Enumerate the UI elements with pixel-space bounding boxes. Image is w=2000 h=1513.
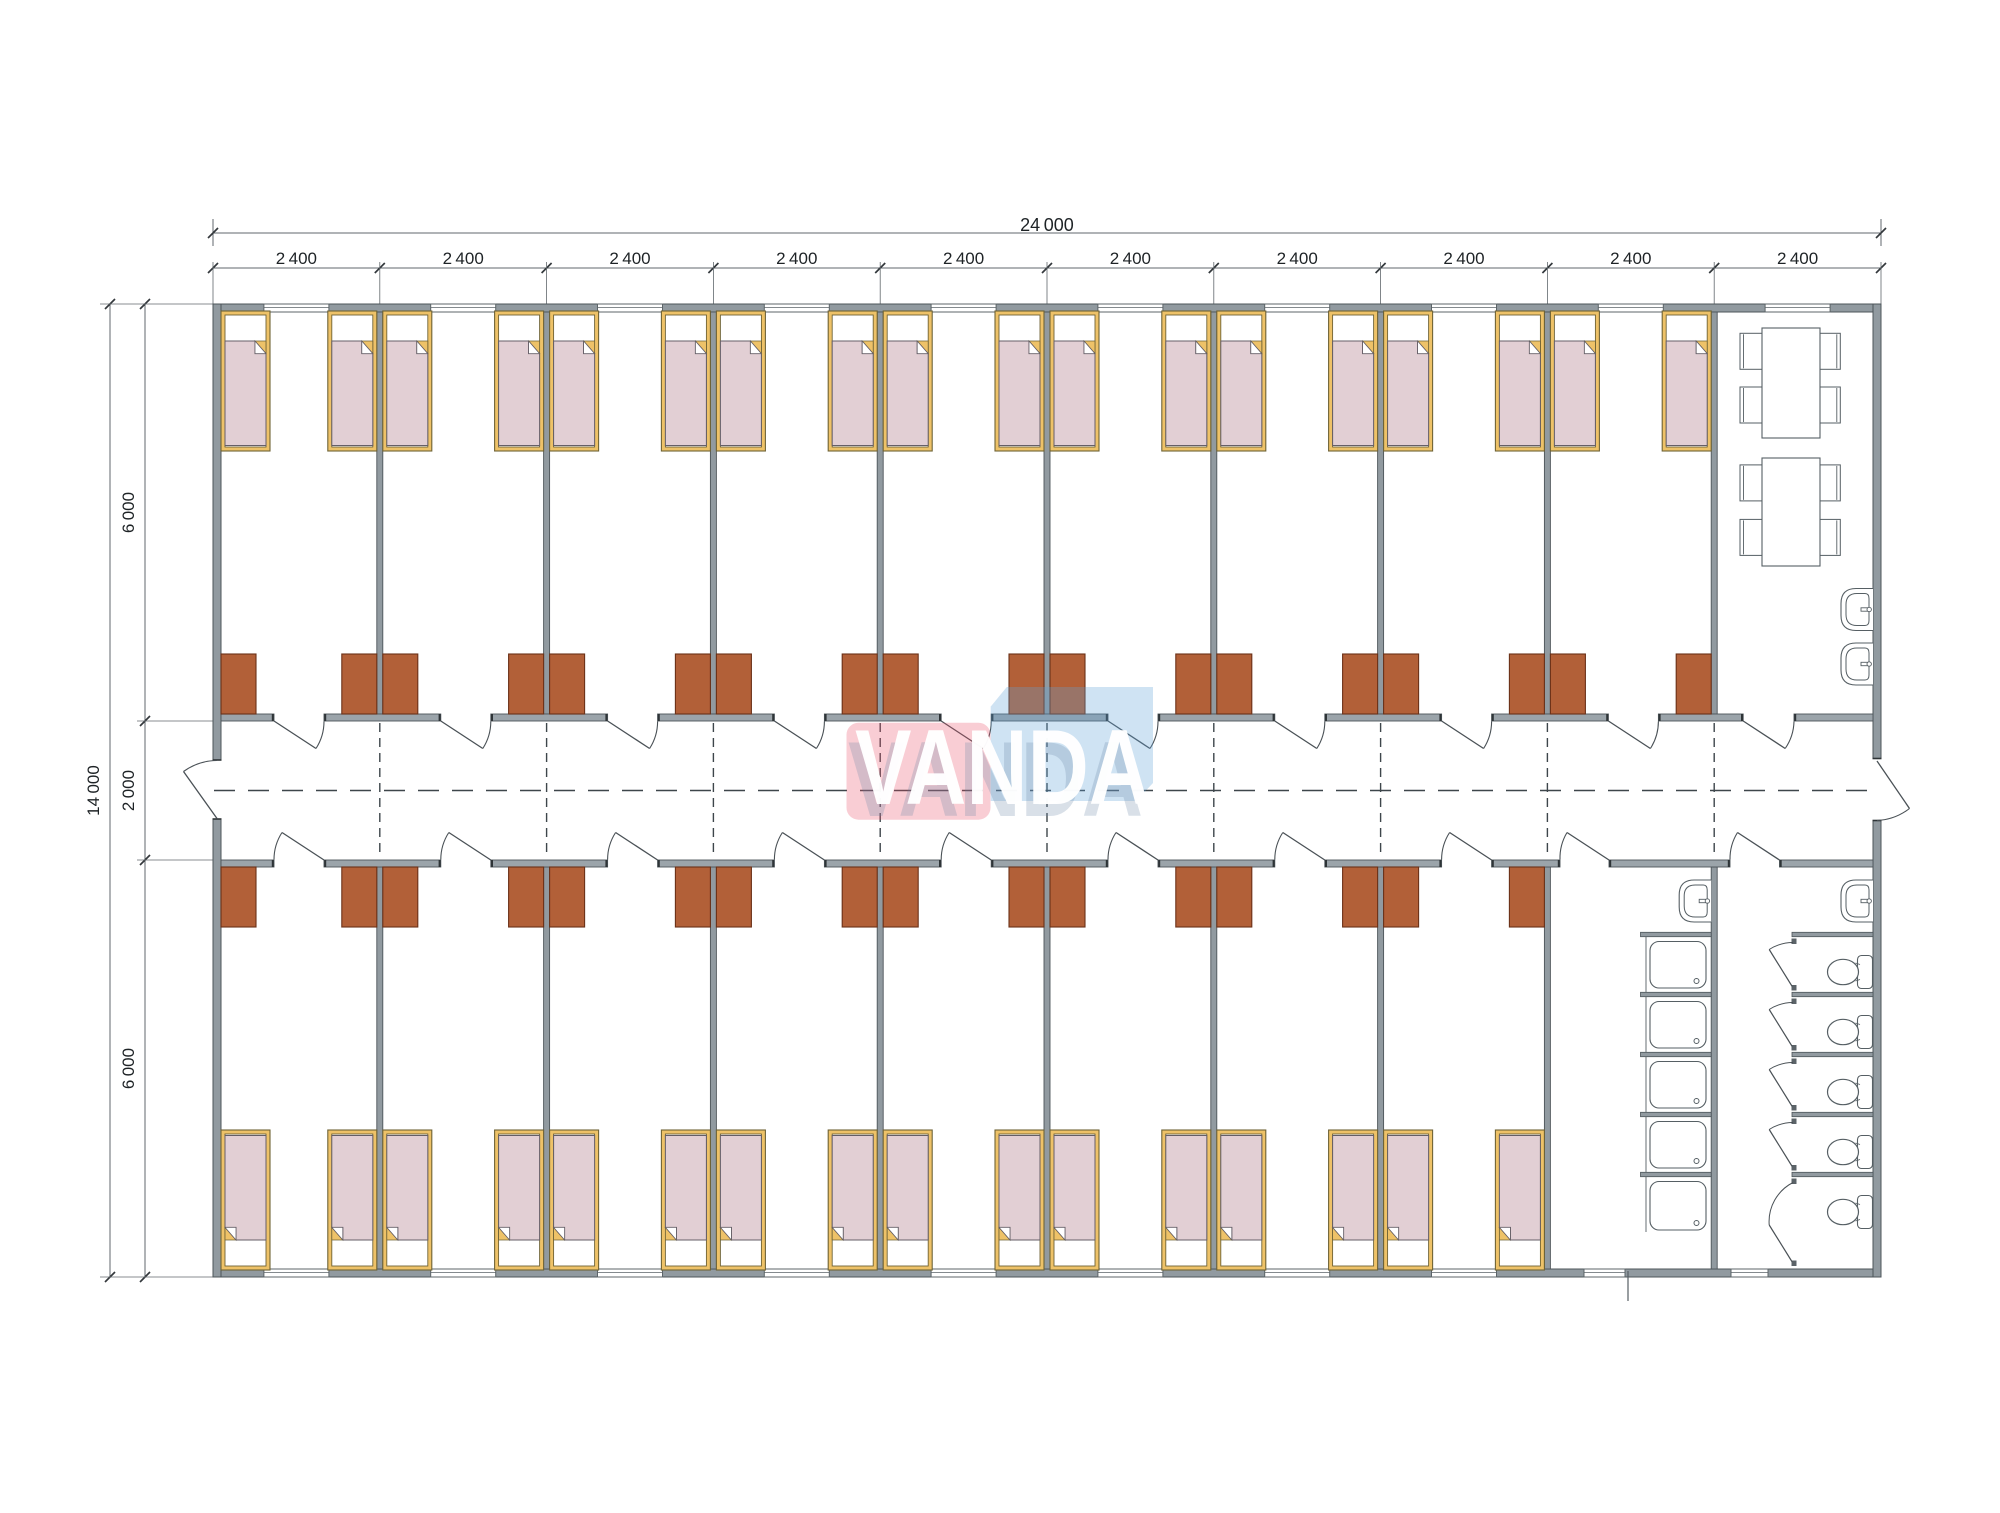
svg-text:6 000: 6 000 — [119, 1048, 138, 1089]
svg-text:24 000: 24 000 — [1020, 215, 1074, 235]
svg-text:2 400: 2 400 — [1277, 249, 1318, 268]
svg-text:6 000: 6 000 — [119, 492, 138, 533]
svg-text:14 000: 14 000 — [84, 765, 103, 816]
svg-text:2 400: 2 400 — [443, 249, 484, 268]
svg-text:2 000: 2 000 — [119, 770, 138, 811]
svg-text:2 400: 2 400 — [1777, 249, 1818, 268]
svg-text:2 400: 2 400 — [1110, 249, 1151, 268]
svg-text:VANDA: VANDA — [855, 707, 1150, 827]
svg-text:2 400: 2 400 — [1443, 249, 1484, 268]
svg-text:2 400: 2 400 — [943, 249, 984, 268]
svg-text:2 400: 2 400 — [609, 249, 650, 268]
svg-text:2 400: 2 400 — [776, 249, 817, 268]
svg-text:2 400: 2 400 — [1610, 249, 1651, 268]
svg-text:2 400: 2 400 — [276, 249, 317, 268]
